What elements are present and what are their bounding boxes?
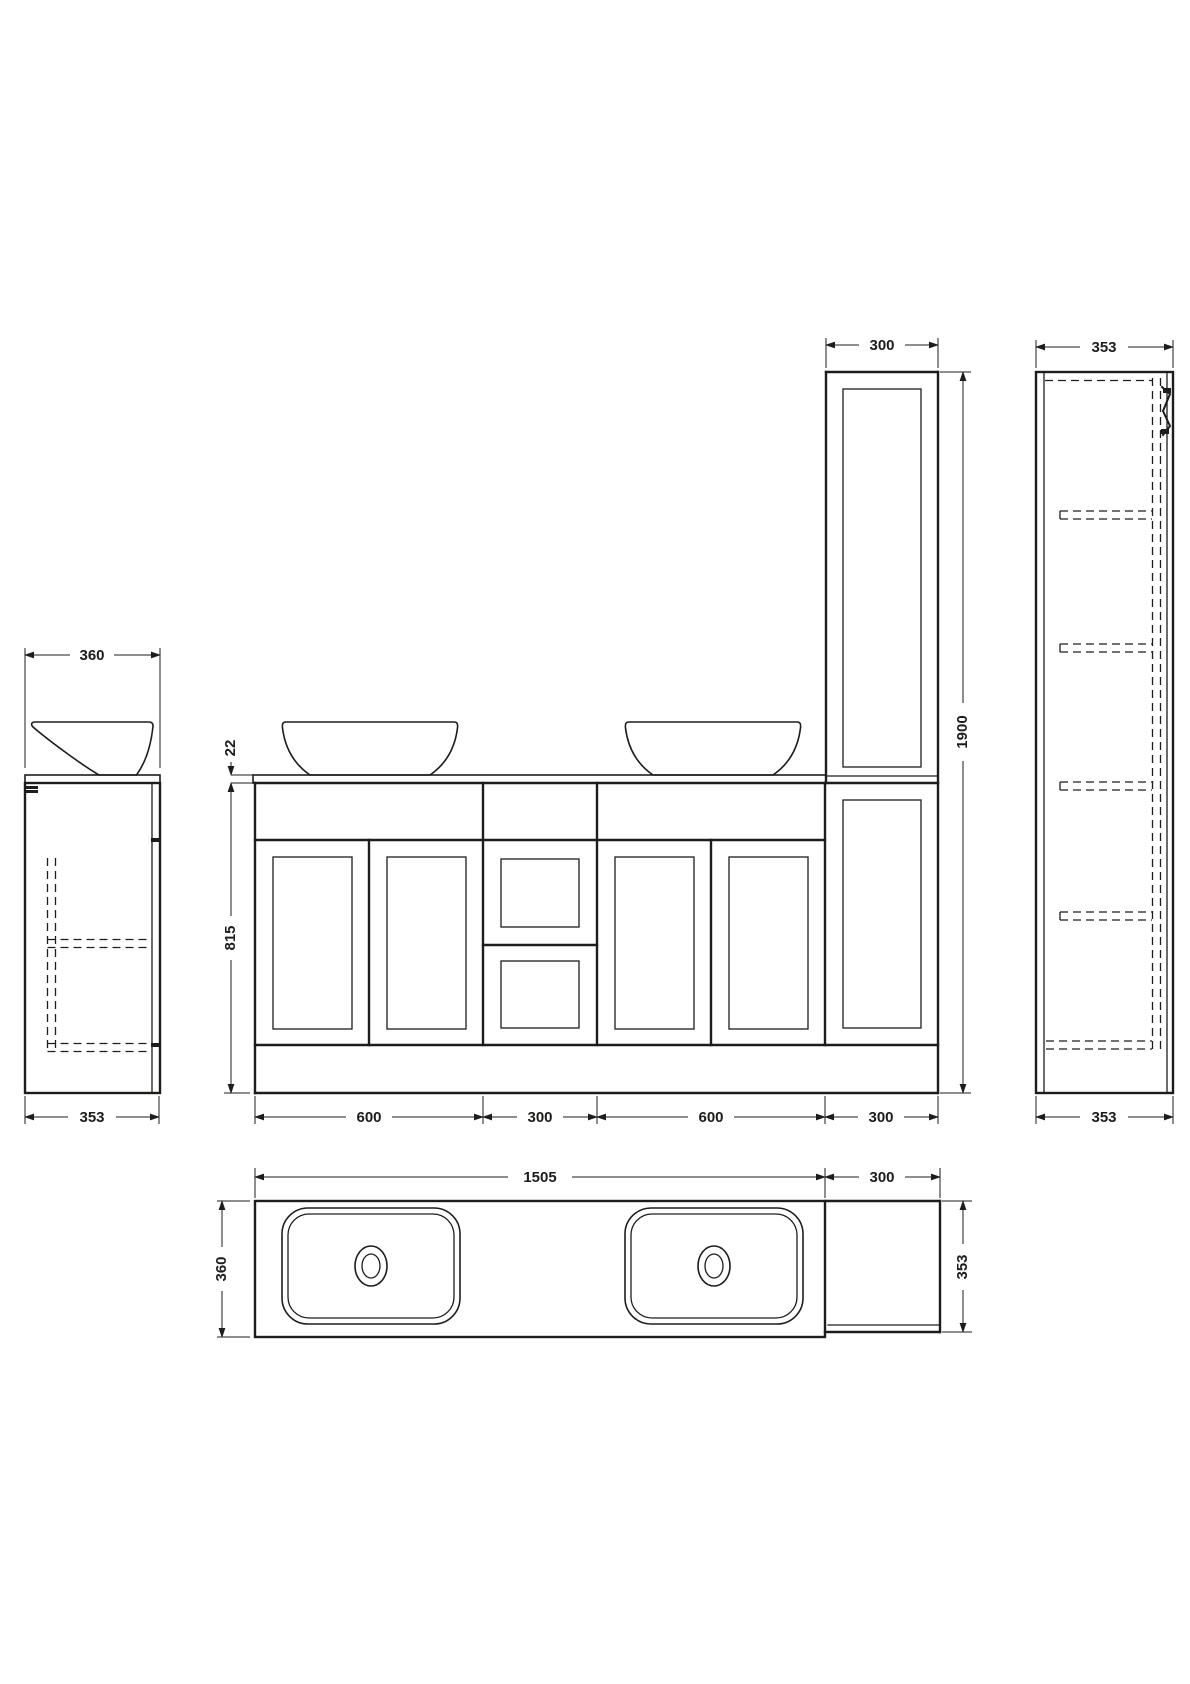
dim-label-300: 300 bbox=[869, 1169, 894, 1186]
view-front-elevation: 22 815 bbox=[222, 336, 972, 1126]
drain-icon bbox=[698, 1246, 730, 1286]
dim-label-815: 815 bbox=[222, 925, 239, 950]
hidden-shelf-lines bbox=[48, 858, 151, 1052]
technical-drawing-page: 360 353 bbox=[0, 0, 1190, 1684]
dim-plan-lengths: 1505 300 bbox=[255, 1168, 940, 1198]
tall-unit-plan bbox=[825, 1201, 940, 1332]
dim-label-22: 22 bbox=[222, 740, 239, 757]
dim-bottom-widths: 600 300 600 300 bbox=[255, 1096, 938, 1126]
basin-left-plan bbox=[282, 1208, 460, 1324]
vanity-carcass-side bbox=[25, 783, 160, 1093]
technical-drawing-canvas: 360 353 bbox=[0, 0, 1190, 1684]
dim-label-600: 600 bbox=[698, 1109, 723, 1126]
knob-icon bbox=[25, 786, 38, 793]
view-vanity-side: 360 353 bbox=[25, 646, 160, 1126]
drawer-panel bbox=[501, 961, 579, 1028]
dim-label-300: 300 bbox=[527, 1109, 552, 1126]
view-plan: 1505 300 bbox=[213, 1168, 972, 1337]
tall-door-panel-lower bbox=[843, 800, 921, 1028]
dim-total-height: 1900 bbox=[940, 372, 972, 1093]
vanity-carcass-front bbox=[255, 783, 938, 1093]
basin-right-plan bbox=[625, 1208, 803, 1324]
dim-tall-unit-width: 300 bbox=[826, 336, 938, 368]
dim-label-360: 360 bbox=[213, 1256, 230, 1281]
dim-plan-tall-depth: 353 bbox=[942, 1201, 972, 1332]
dim-label-300: 300 bbox=[868, 1109, 893, 1126]
dim-label-600: 600 bbox=[356, 1109, 381, 1126]
drain-icon bbox=[355, 1246, 387, 1286]
drawer-panel bbox=[501, 859, 579, 927]
dim-vanity-height: 815 bbox=[222, 783, 250, 1093]
dim-counter-thickness: 22 bbox=[222, 740, 253, 783]
countertop-side bbox=[25, 775, 160, 783]
hinge-icon bbox=[1161, 387, 1171, 435]
dim-plan-depth: 360 bbox=[213, 1201, 250, 1337]
dim-label-360: 360 bbox=[79, 647, 104, 664]
dim-vanity-side-bottom-width: 353 bbox=[25, 1096, 159, 1126]
dim-label-353: 353 bbox=[1091, 339, 1116, 356]
basin-left-front bbox=[282, 722, 457, 775]
dim-label-1900: 1900 bbox=[954, 715, 971, 748]
dim-tall-side-top-width: 353 bbox=[1036, 338, 1173, 368]
dim-label-1505: 1505 bbox=[523, 1169, 556, 1186]
dim-label-300: 300 bbox=[869, 337, 894, 354]
hinge-icon bbox=[151, 838, 160, 842]
hidden-shelf-lines bbox=[1046, 511, 1152, 1049]
hinge-icon bbox=[151, 1043, 160, 1047]
door-panel bbox=[615, 857, 694, 1029]
dim-label-353: 353 bbox=[954, 1254, 971, 1279]
door-panel bbox=[387, 857, 466, 1029]
countertop-plan bbox=[255, 1201, 825, 1337]
dim-vanity-side-top-width: 360 bbox=[25, 646, 160, 768]
view-tall-side: 353 bbox=[1036, 338, 1173, 1126]
hidden-door-lines bbox=[1045, 378, 1161, 1049]
dim-label-353: 353 bbox=[79, 1109, 104, 1126]
basin-right-front bbox=[625, 722, 800, 775]
dim-tall-side-bottom-width: 353 bbox=[1036, 1096, 1173, 1126]
basin-side-profile bbox=[32, 722, 153, 775]
door-panel bbox=[273, 857, 352, 1029]
tall-unit-front bbox=[825, 372, 938, 1093]
tall-door-panel-upper bbox=[843, 389, 921, 767]
door-panel bbox=[729, 857, 808, 1029]
dim-label-353: 353 bbox=[1091, 1109, 1116, 1126]
